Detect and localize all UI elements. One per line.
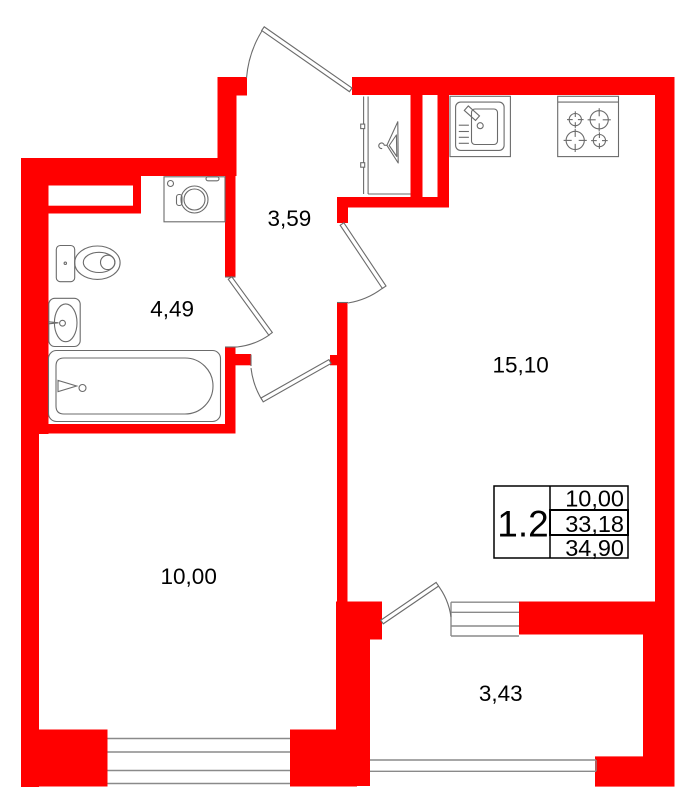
svg-text:4,49: 4,49	[150, 297, 194, 322]
svg-text:3,43: 3,43	[479, 681, 523, 706]
svg-text:34,90: 34,90	[565, 535, 624, 561]
svg-text:3,59: 3,59	[268, 206, 312, 231]
svg-text:33,18: 33,18	[565, 511, 624, 537]
svg-text:10,00: 10,00	[565, 486, 624, 512]
svg-text:15,10: 15,10	[492, 353, 548, 378]
svg-text:1.2: 1.2	[497, 504, 548, 545]
svg-text:10,00: 10,00	[161, 564, 217, 589]
